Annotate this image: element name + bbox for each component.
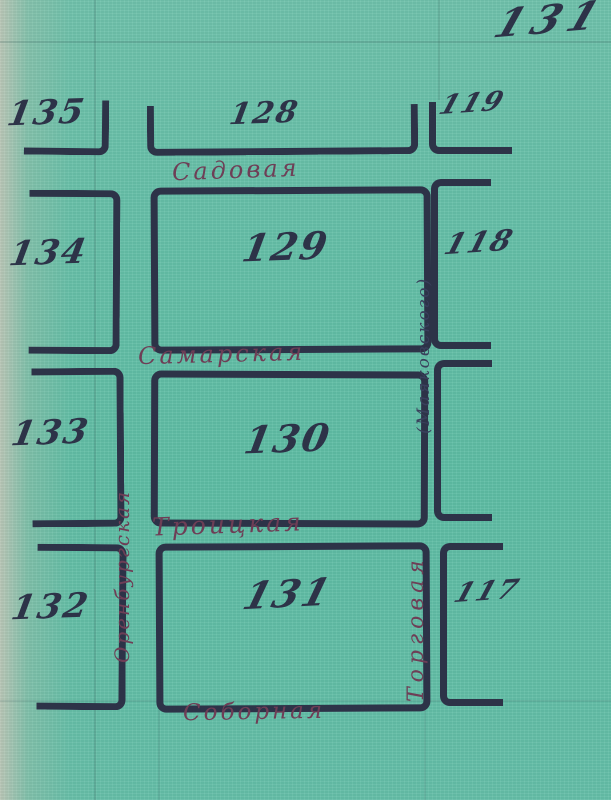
street-label-mayakovskogo: (Маяковского) — [416, 168, 444, 434]
block-number-131: 131 — [239, 573, 336, 615]
block-number-135: 135 — [5, 95, 89, 132]
street-label-sobornaya: Соборная — [183, 700, 326, 725]
block-outline-131 — [156, 542, 431, 712]
street-label-torgovaya: Торговая — [406, 452, 438, 702]
street-label-troitskaya: Троицкая — [152, 509, 304, 539]
page-number: 131 — [489, 0, 611, 44]
block-number-119: 119 — [436, 88, 509, 119]
block-number-130: 130 — [241, 419, 334, 460]
block-number-132: 132 — [9, 589, 93, 626]
block-number-129: 129 — [239, 227, 332, 268]
pencil-grid-line — [438, 0, 440, 100]
block-number-134: 134 — [7, 235, 91, 272]
block-number-118: 118 — [441, 226, 518, 260]
block-number-117: 117 — [451, 576, 524, 607]
block-number-133: 133 — [9, 415, 93, 452]
street-label-sadovaya: Садовая — [172, 156, 300, 184]
street-label-orenburgskaya: Оренбургская — [112, 378, 142, 663]
map-page: 131 135 128 119 134 129 118 133 130 132 … — [0, 0, 611, 800]
street-label-samarskaya: Самарская — [138, 340, 306, 368]
block-outline-129 — [151, 186, 432, 353]
block-number-128: 128 — [227, 98, 301, 130]
block-outline-117 — [440, 543, 503, 706]
